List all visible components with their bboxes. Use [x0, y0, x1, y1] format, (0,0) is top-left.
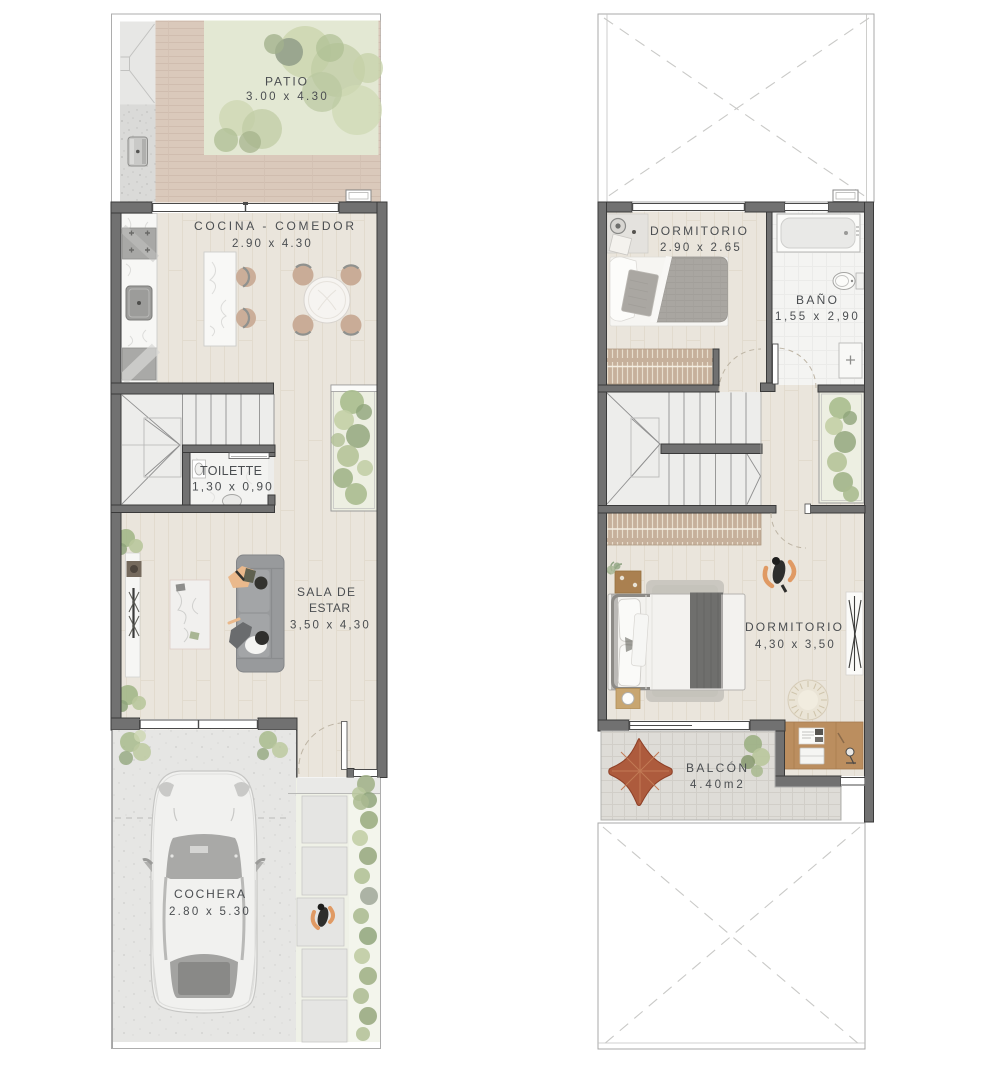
svg-text:COCINA - COMEDOR: COCINA - COMEDOR [194, 219, 356, 233]
svg-text:3.00 x 4.30: 3.00 x 4.30 [246, 91, 328, 103]
svg-text:1,55 x 2,90: 1,55 x 2,90 [775, 311, 859, 323]
svg-text:2.90 x 2.65: 2.90 x 2.65 [660, 242, 741, 254]
svg-text:2.90 x 4.30: 2.90 x 4.30 [232, 238, 312, 250]
svg-text:4,30 x 3,50: 4,30 x 3,50 [755, 639, 835, 651]
svg-text:SALA DE: SALA DE [297, 585, 357, 599]
svg-text:1,30 x 0,90: 1,30 x 0,90 [192, 480, 273, 494]
svg-text:BALCÓN: BALCÓN [686, 760, 749, 775]
svg-text:3,50 x 4,30: 3,50 x 4,30 [290, 620, 370, 632]
svg-text:BAÑO: BAÑO [796, 293, 839, 307]
svg-text:DORMITORIO: DORMITORIO [650, 224, 749, 238]
svg-text:TOILETTE: TOILETTE [200, 464, 264, 478]
svg-text:DORMITORIO: DORMITORIO [745, 620, 844, 634]
svg-text:COCHERA: COCHERA [174, 887, 247, 901]
svg-text:2.80 x 5.30: 2.80 x 5.30 [169, 906, 250, 918]
svg-text:ESTAR: ESTAR [309, 601, 352, 615]
svg-text:PATIO: PATIO [265, 75, 309, 89]
